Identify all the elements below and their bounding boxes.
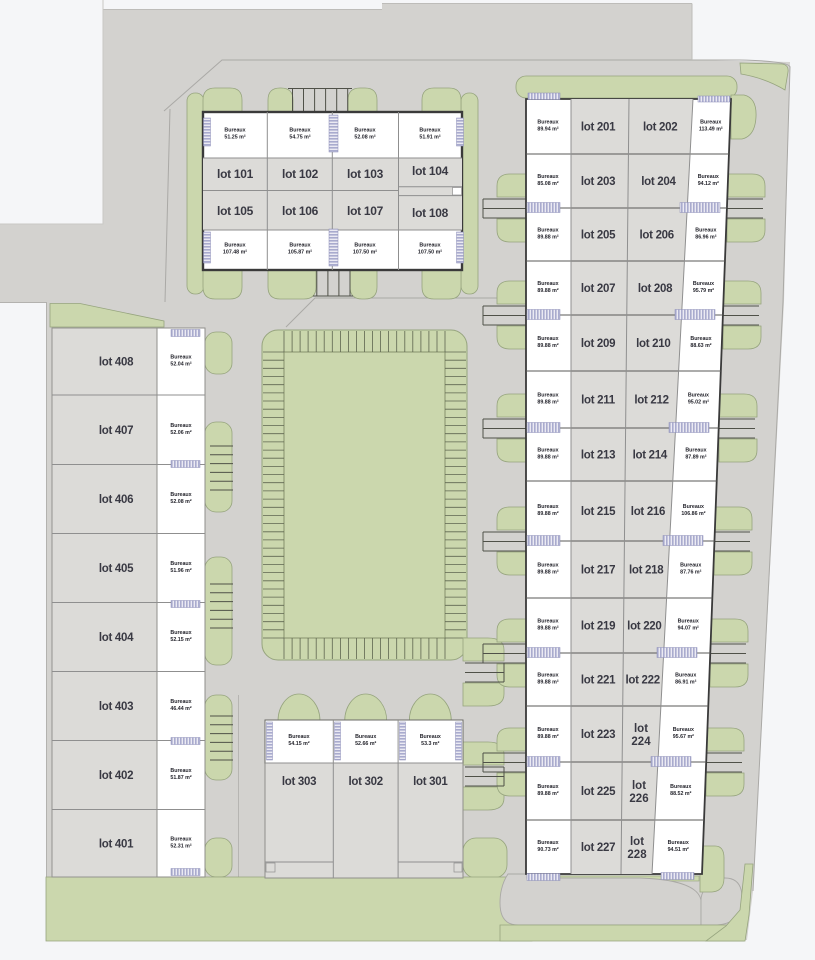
svg-text:Bureaux51.91 m²: Bureaux51.91 m² bbox=[419, 128, 440, 141]
svg-text:Bureaux95.02 m²: Bureaux95.02 m² bbox=[688, 393, 709, 406]
svg-text:Bureaux107.48 m²: Bureaux107.48 m² bbox=[223, 243, 247, 256]
svg-text:lot 204: lot 204 bbox=[641, 176, 676, 188]
svg-text:Bureaux52.04 m²: Bureaux52.04 m² bbox=[170, 355, 191, 368]
svg-text:lot 208: lot 208 bbox=[638, 283, 673, 295]
svg-text:lot 211: lot 211 bbox=[581, 395, 616, 407]
svg-text:Bureaux89.88 m²: Bureaux89.88 m² bbox=[537, 393, 558, 406]
svg-text:lot 213: lot 213 bbox=[581, 450, 615, 462]
svg-text:lot 209: lot 209 bbox=[581, 338, 615, 350]
svg-text:lot 301: lot 301 bbox=[413, 776, 448, 788]
svg-text:Bureaux52.08 m²: Bureaux52.08 m² bbox=[170, 492, 191, 505]
svg-text:Bureaux52.08 m²: Bureaux52.08 m² bbox=[354, 128, 375, 141]
svg-text:lot 222: lot 222 bbox=[625, 675, 659, 687]
svg-text:lot 103: lot 103 bbox=[347, 167, 384, 181]
svg-text:lot 403: lot 403 bbox=[99, 701, 133, 713]
svg-text:Bureaux54.15 m²: Bureaux54.15 m² bbox=[288, 734, 309, 747]
svg-text:Bureaux89.88 m²: Bureaux89.88 m² bbox=[537, 228, 558, 241]
svg-text:lot 219: lot 219 bbox=[581, 621, 615, 633]
svg-text:Bureaux51.25 m²: Bureaux51.25 m² bbox=[224, 128, 245, 141]
svg-text:Bureaux87.89 m²: Bureaux87.89 m² bbox=[685, 448, 706, 461]
svg-text:lot 205: lot 205 bbox=[581, 230, 616, 242]
svg-text:Bureaux88.52 m²: Bureaux88.52 m² bbox=[670, 784, 691, 797]
svg-text:lot 201: lot 201 bbox=[581, 122, 616, 134]
svg-text:lot 408: lot 408 bbox=[99, 357, 134, 369]
svg-text:lot 218: lot 218 bbox=[629, 565, 664, 577]
svg-text:Bureaux89.88 m²: Bureaux89.88 m² bbox=[537, 336, 558, 349]
svg-text:lot 406: lot 406 bbox=[99, 494, 133, 506]
svg-text:Bureaux105.87 m²: Bureaux105.87 m² bbox=[288, 243, 312, 256]
svg-text:Bureaux51.96 m²: Bureaux51.96 m² bbox=[170, 561, 191, 574]
svg-text:lot 225: lot 225 bbox=[581, 786, 616, 798]
svg-text:Bureaux51.87 m²: Bureaux51.87 m² bbox=[170, 768, 191, 781]
svg-text:lot 402: lot 402 bbox=[99, 770, 133, 782]
svg-text:lot 215: lot 215 bbox=[581, 506, 616, 518]
svg-text:lot 102: lot 102 bbox=[282, 167, 319, 181]
svg-text:Bureaux88.63 m²: Bureaux88.63 m² bbox=[690, 336, 711, 349]
svg-text:lot 108: lot 108 bbox=[412, 206, 449, 220]
svg-text:Bureaux85.08 m²: Bureaux85.08 m² bbox=[537, 174, 558, 187]
svg-text:Bureaux54.75 m²: Bureaux54.75 m² bbox=[289, 128, 310, 141]
svg-text:lot 107: lot 107 bbox=[347, 204, 384, 218]
svg-text:Bureaux94.12 m²: Bureaux94.12 m² bbox=[698, 174, 719, 187]
svg-text:lot 401: lot 401 bbox=[99, 838, 134, 850]
svg-text:Bureaux52.15 m²: Bureaux52.15 m² bbox=[170, 630, 191, 643]
svg-text:Bureaux106.86 m²: Bureaux106.86 m² bbox=[681, 504, 705, 517]
svg-text:Bureaux89.94 m²: Bureaux89.94 m² bbox=[537, 120, 558, 133]
svg-text:lot 303: lot 303 bbox=[282, 776, 316, 788]
svg-text:lot 227: lot 227 bbox=[581, 842, 615, 854]
svg-text:lot 405: lot 405 bbox=[99, 563, 134, 575]
svg-text:lot 212: lot 212 bbox=[634, 395, 668, 407]
svg-text:lot 220: lot 220 bbox=[627, 621, 661, 633]
svg-text:lot 407: lot 407 bbox=[99, 425, 133, 437]
svg-text:lot 217: lot 217 bbox=[581, 565, 615, 577]
svg-text:Bureaux53.3 m²: Bureaux53.3 m² bbox=[420, 734, 441, 747]
svg-text:lot 206: lot 206 bbox=[640, 230, 674, 242]
svg-text:Bureaux52.06 m²: Bureaux52.06 m² bbox=[170, 423, 191, 436]
svg-text:Bureaux89.88 m²: Bureaux89.88 m² bbox=[537, 281, 558, 294]
svg-text:lot 404: lot 404 bbox=[99, 632, 134, 644]
svg-text:lot 104: lot 104 bbox=[412, 164, 449, 178]
svg-text:Bureaux46.44 m²: Bureaux46.44 m² bbox=[170, 699, 191, 712]
svg-text:Bureaux89.88 m²: Bureaux89.88 m² bbox=[537, 673, 558, 686]
svg-text:Bureaux87.76 m²: Bureaux87.76 m² bbox=[680, 563, 701, 576]
svg-text:Bureaux89.88 m²: Bureaux89.88 m² bbox=[537, 784, 558, 797]
svg-text:Bureaux89.88 m²: Bureaux89.88 m² bbox=[537, 504, 558, 517]
svg-text:lot 101: lot 101 bbox=[217, 167, 254, 181]
svg-text:Bureaux89.88 m²: Bureaux89.88 m² bbox=[537, 727, 558, 740]
svg-text:Bureaux113.49 m²: Bureaux113.49 m² bbox=[699, 120, 723, 133]
svg-text:lot 207: lot 207 bbox=[581, 283, 615, 295]
svg-text:Bureaux86.91 m²: Bureaux86.91 m² bbox=[675, 673, 696, 686]
svg-text:Bureaux95.79 m²: Bureaux95.79 m² bbox=[693, 281, 714, 294]
svg-text:lot 302: lot 302 bbox=[349, 776, 383, 788]
svg-text:lot 203: lot 203 bbox=[581, 176, 615, 188]
svg-text:lot 105: lot 105 bbox=[217, 204, 254, 218]
svg-text:Bureaux89.88 m²: Bureaux89.88 m² bbox=[537, 563, 558, 576]
svg-text:Bureaux86.96 m²: Bureaux86.96 m² bbox=[695, 228, 716, 241]
svg-text:lot 202: lot 202 bbox=[643, 122, 677, 134]
svg-text:Bureaux52.66 m²: Bureaux52.66 m² bbox=[355, 734, 376, 747]
svg-text:Bureaux89.88 m²: Bureaux89.88 m² bbox=[537, 619, 558, 632]
svg-text:Bureaux95.67 m²: Bureaux95.67 m² bbox=[673, 727, 694, 740]
svg-text:lot 221: lot 221 bbox=[581, 675, 616, 687]
svg-text:Bureaux90.73 m²: Bureaux90.73 m² bbox=[537, 840, 558, 853]
svg-text:lot 216: lot 216 bbox=[631, 506, 665, 518]
svg-text:Bureaux52.31 m²: Bureaux52.31 m² bbox=[170, 836, 191, 849]
svg-text:lot 210: lot 210 bbox=[636, 338, 670, 350]
svg-text:lot 106: lot 106 bbox=[282, 204, 319, 218]
svg-text:lot 214: lot 214 bbox=[633, 450, 668, 462]
svg-text:lot226: lot226 bbox=[629, 780, 648, 805]
svg-text:Bureaux94.51 m²: Bureaux94.51 m² bbox=[668, 840, 689, 853]
svg-text:Bureaux89.88 m²: Bureaux89.88 m² bbox=[537, 448, 558, 461]
svg-text:Bureaux107.50 m²: Bureaux107.50 m² bbox=[353, 243, 377, 256]
svg-text:Bureaux107.50 m²: Bureaux107.50 m² bbox=[418, 243, 442, 256]
svg-text:Bureaux94.07 m²: Bureaux94.07 m² bbox=[678, 619, 699, 632]
svg-text:lot 223: lot 223 bbox=[581, 729, 615, 741]
